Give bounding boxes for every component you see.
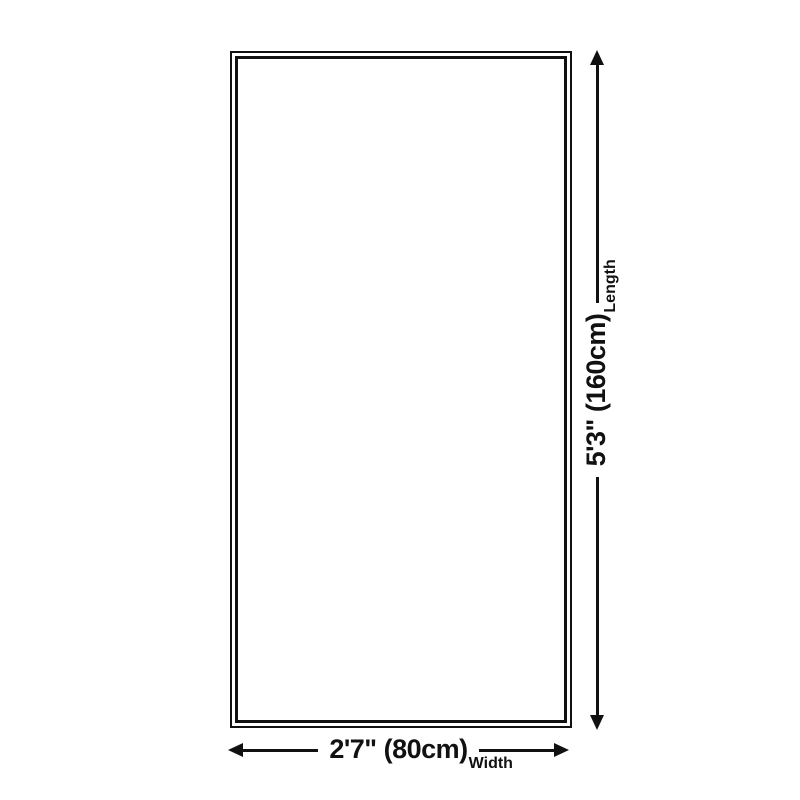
width-dimension-arrow: 2'7" (80cm) Width (228, 728, 569, 772)
rug-outline-inner (235, 56, 567, 723)
arrow-up-icon (590, 50, 604, 65)
width-dimension-line-left (243, 749, 318, 752)
width-dimension-line-right: Width (479, 749, 554, 752)
width-value-label: 2'7" (80cm) (329, 736, 467, 763)
length-value-label: 5'3" (160cm) (583, 314, 610, 467)
length-dimension-line-upper: Length (596, 65, 599, 303)
arrow-down-icon (590, 715, 604, 730)
arrow-left-icon (228, 743, 243, 757)
width-axis-label: Width (469, 756, 513, 772)
rug-outline (230, 51, 572, 728)
length-axis-label: Length (603, 259, 619, 312)
length-dimension-arrow: 5'3" (160cm) Length (575, 50, 619, 730)
arrow-right-icon (554, 743, 569, 757)
rug-dimension-diagram: 5'3" (160cm) Length 2'7" (80cm) Width (0, 0, 800, 800)
length-dimension-line-lower (596, 477, 599, 715)
